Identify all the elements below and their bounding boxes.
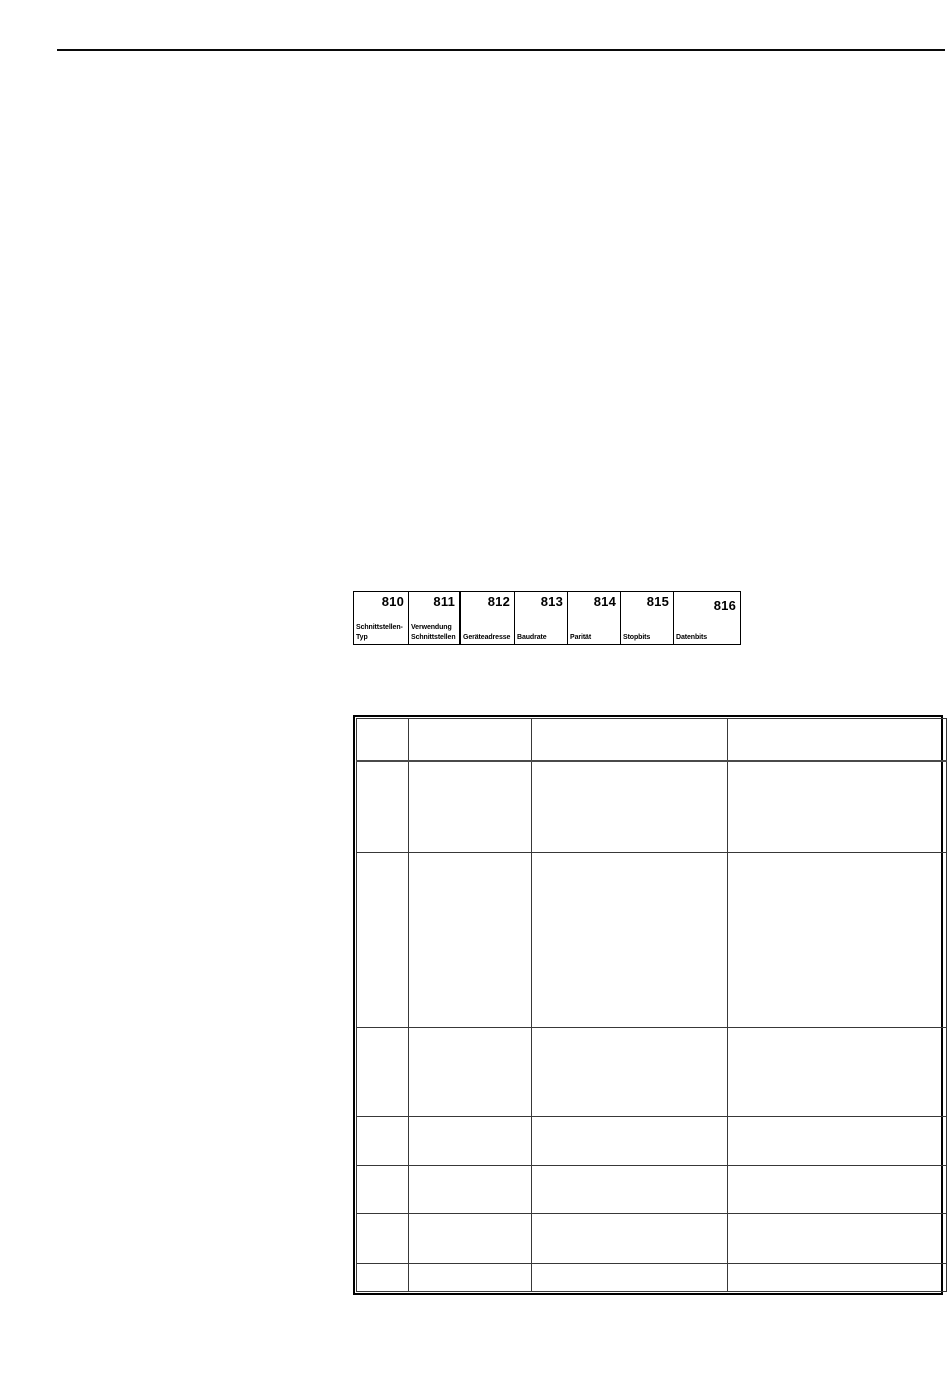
param-cell-811: 811 Verwendung Schnittstellen — [409, 592, 461, 644]
parameter-strip-table: 810 Schnittstellen- Typ 811 Verwendung S… — [353, 591, 741, 645]
table-cell — [728, 1165, 947, 1213]
table-row — [357, 1213, 947, 1263]
table-cell — [409, 853, 532, 1028]
param-label: Geräteadresse — [463, 633, 510, 642]
param-cell-814: 814 Parität — [568, 592, 621, 644]
table-cell — [532, 1027, 728, 1116]
main-table-frame — [353, 715, 943, 1295]
param-number: 815 — [647, 594, 669, 609]
table-row — [357, 1165, 947, 1213]
param-label: Parität — [570, 633, 591, 642]
empty-parameter-table — [356, 718, 947, 1292]
table-cell — [409, 1117, 532, 1166]
table-header-row — [357, 719, 947, 762]
param-label: Schnittstellen- Typ — [356, 623, 403, 642]
table-cell — [357, 1263, 409, 1292]
param-cell-810: 810 Schnittstellen- Typ — [354, 592, 409, 644]
table-cell — [532, 1117, 728, 1166]
table-row — [357, 1027, 947, 1116]
table-cell — [728, 1213, 947, 1263]
table-row — [357, 761, 947, 852]
param-number: 810 — [382, 594, 404, 609]
table-cell — [409, 719, 532, 762]
table-cell — [728, 1027, 947, 1116]
table-row — [357, 1263, 947, 1292]
table-cell — [532, 761, 728, 852]
table-cell — [409, 761, 532, 852]
table-cell — [409, 1027, 532, 1116]
table-cell — [532, 853, 728, 1028]
table-cell — [409, 1213, 532, 1263]
table-cell — [728, 719, 947, 762]
table-cell — [357, 853, 409, 1028]
param-number: 812 — [488, 594, 510, 609]
param-cell-812: 812 Geräteadresse — [461, 592, 515, 644]
param-number: 816 — [714, 598, 736, 613]
table-cell — [357, 719, 409, 762]
param-number: 811 — [433, 594, 455, 609]
table-cell — [357, 1213, 409, 1263]
param-label: Stopbits — [623, 633, 650, 642]
param-cell-813: 813 Baudrate — [515, 592, 568, 644]
table-cell — [532, 1263, 728, 1292]
param-cell-815: 815 Stopbits — [621, 592, 674, 644]
table-cell — [409, 1263, 532, 1292]
table-cell — [532, 1165, 728, 1213]
param-number: 813 — [541, 594, 563, 609]
param-cell-816: 816 Datenbits — [674, 592, 740, 644]
table-cell — [728, 853, 947, 1028]
table-cell — [357, 761, 409, 852]
table-cell — [532, 719, 728, 762]
param-label: Datenbits — [676, 633, 707, 642]
param-label: Baudrate — [517, 633, 547, 642]
table-row — [357, 853, 947, 1028]
table-cell — [357, 1027, 409, 1116]
table-cell — [728, 1263, 947, 1292]
table-cell — [728, 761, 947, 852]
table-cell — [357, 1165, 409, 1213]
table-cell — [728, 1117, 947, 1166]
table-cell — [409, 1165, 532, 1213]
param-number: 814 — [594, 594, 616, 609]
table-row — [357, 1117, 947, 1166]
table-cell — [532, 1213, 728, 1263]
table-cell — [357, 1117, 409, 1166]
param-label: Verwendung Schnittstellen — [411, 623, 456, 642]
page-header-rule — [57, 49, 945, 51]
